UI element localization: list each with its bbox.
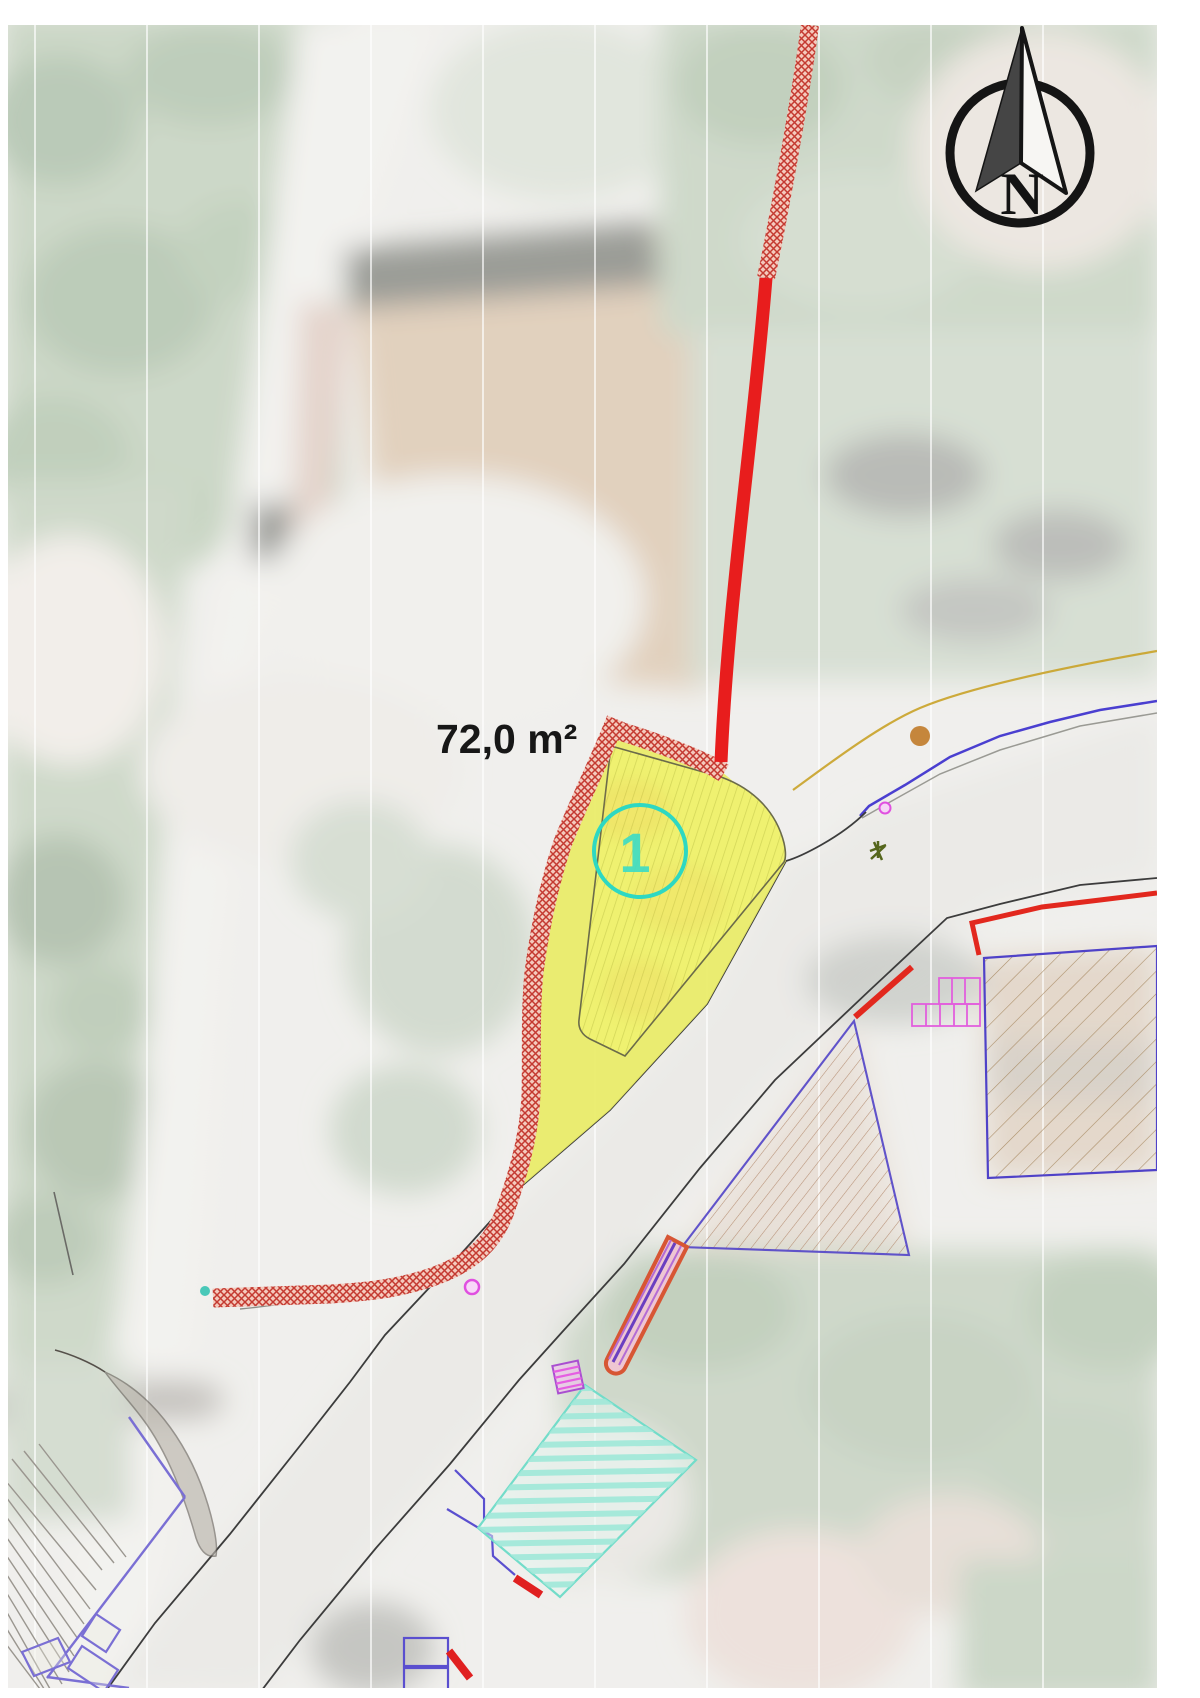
svg-text:N: N (1000, 161, 1043, 227)
svg-text:72,0 m²: 72,0 m² (436, 716, 577, 762)
svg-text:1: 1 (619, 821, 650, 884)
